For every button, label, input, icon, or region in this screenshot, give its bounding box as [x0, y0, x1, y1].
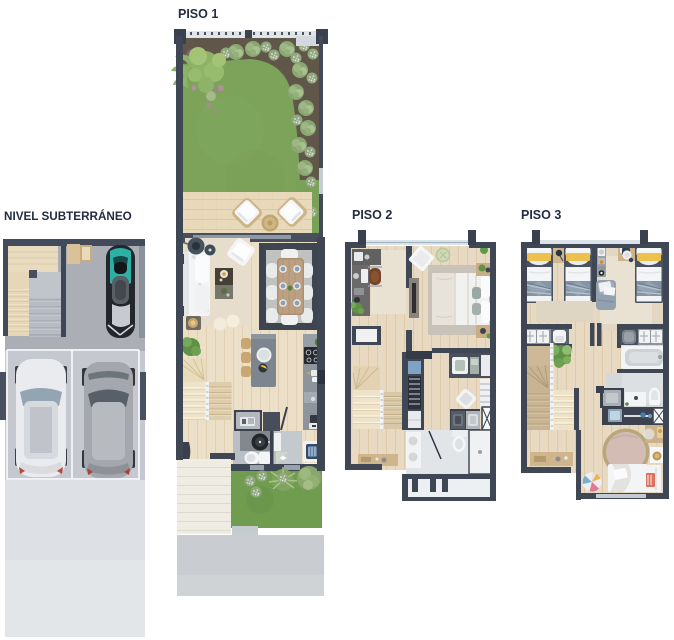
svg-text:PISO 1: PISO 1	[178, 7, 218, 21]
svg-text:NIVEL SUBTERRÁNEO: NIVEL SUBTERRÁNEO	[4, 210, 132, 223]
svg-text:PISO 2: PISO 2	[352, 208, 392, 222]
svg-text:PISO 3: PISO 3	[521, 208, 561, 222]
